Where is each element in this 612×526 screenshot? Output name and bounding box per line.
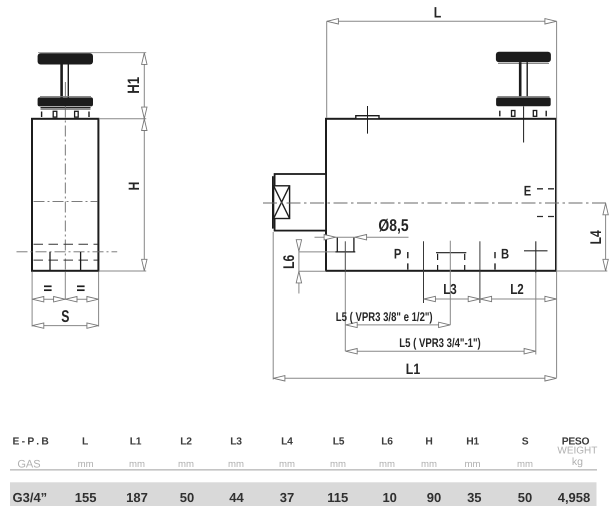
svg-text:L6: L6 <box>281 254 298 268</box>
svg-text:115: 115 <box>327 490 348 505</box>
svg-text:S: S <box>61 307 69 326</box>
svg-text:E - P . B: E - P . B <box>13 437 49 448</box>
svg-text:H: H <box>126 182 143 191</box>
svg-text:L2: L2 <box>180 437 192 448</box>
svg-text:10: 10 <box>382 490 396 505</box>
svg-text:L: L <box>82 437 88 448</box>
svg-text:mm: mm <box>78 459 94 470</box>
svg-text:37: 37 <box>280 490 294 505</box>
svg-text:35: 35 <box>467 490 481 505</box>
svg-text:mm: mm <box>517 459 533 470</box>
svg-text:L4: L4 <box>588 230 605 244</box>
svg-text:90: 90 <box>427 490 441 505</box>
svg-text:50: 50 <box>180 490 194 505</box>
svg-text:155: 155 <box>75 490 97 505</box>
svg-text:L2: L2 <box>510 282 524 298</box>
svg-text:4,958: 4,958 <box>558 490 591 505</box>
svg-text:L5: L5 <box>333 437 345 448</box>
svg-text:mm: mm <box>465 459 481 470</box>
svg-text:kg: kg <box>572 456 583 468</box>
svg-text:mm: mm <box>129 459 145 470</box>
svg-text:mm: mm <box>228 459 244 470</box>
svg-text:H1: H1 <box>125 77 143 94</box>
svg-text:44: 44 <box>229 490 244 505</box>
svg-text:mm: mm <box>330 459 346 470</box>
svg-text:mm: mm <box>279 459 295 470</box>
svg-text:GAS: GAS <box>17 458 40 470</box>
svg-text:P: P <box>394 245 401 261</box>
svg-text:L3: L3 <box>230 437 242 448</box>
svg-text:L5 ( VPR3 3/8" e 1/2"): L5 ( VPR3 3/8" e 1/2") <box>336 310 433 324</box>
svg-text:187: 187 <box>126 490 148 505</box>
svg-text:mm: mm <box>379 459 395 470</box>
svg-text:E: E <box>524 183 531 199</box>
svg-text:L1: L1 <box>406 361 420 378</box>
svg-text:H1: H1 <box>466 437 479 448</box>
svg-text:mm: mm <box>178 459 194 470</box>
svg-text:L1: L1 <box>130 437 142 448</box>
svg-text:L5 ( VPR3 3/4"-1"): L5 ( VPR3 3/4"-1") <box>399 336 480 350</box>
svg-text:L6: L6 <box>381 437 393 448</box>
svg-text:50: 50 <box>518 490 532 505</box>
svg-text:B: B <box>501 245 509 261</box>
svg-text:L3: L3 <box>443 282 457 298</box>
svg-text:L: L <box>434 5 442 22</box>
svg-text:mm: mm <box>421 459 437 470</box>
svg-text:L4: L4 <box>281 437 293 448</box>
svg-text:S: S <box>522 437 529 448</box>
svg-text:Ø8,5: Ø8,5 <box>378 216 408 235</box>
svg-text:H: H <box>425 437 432 448</box>
svg-text:G3/4”: G3/4” <box>13 490 48 505</box>
